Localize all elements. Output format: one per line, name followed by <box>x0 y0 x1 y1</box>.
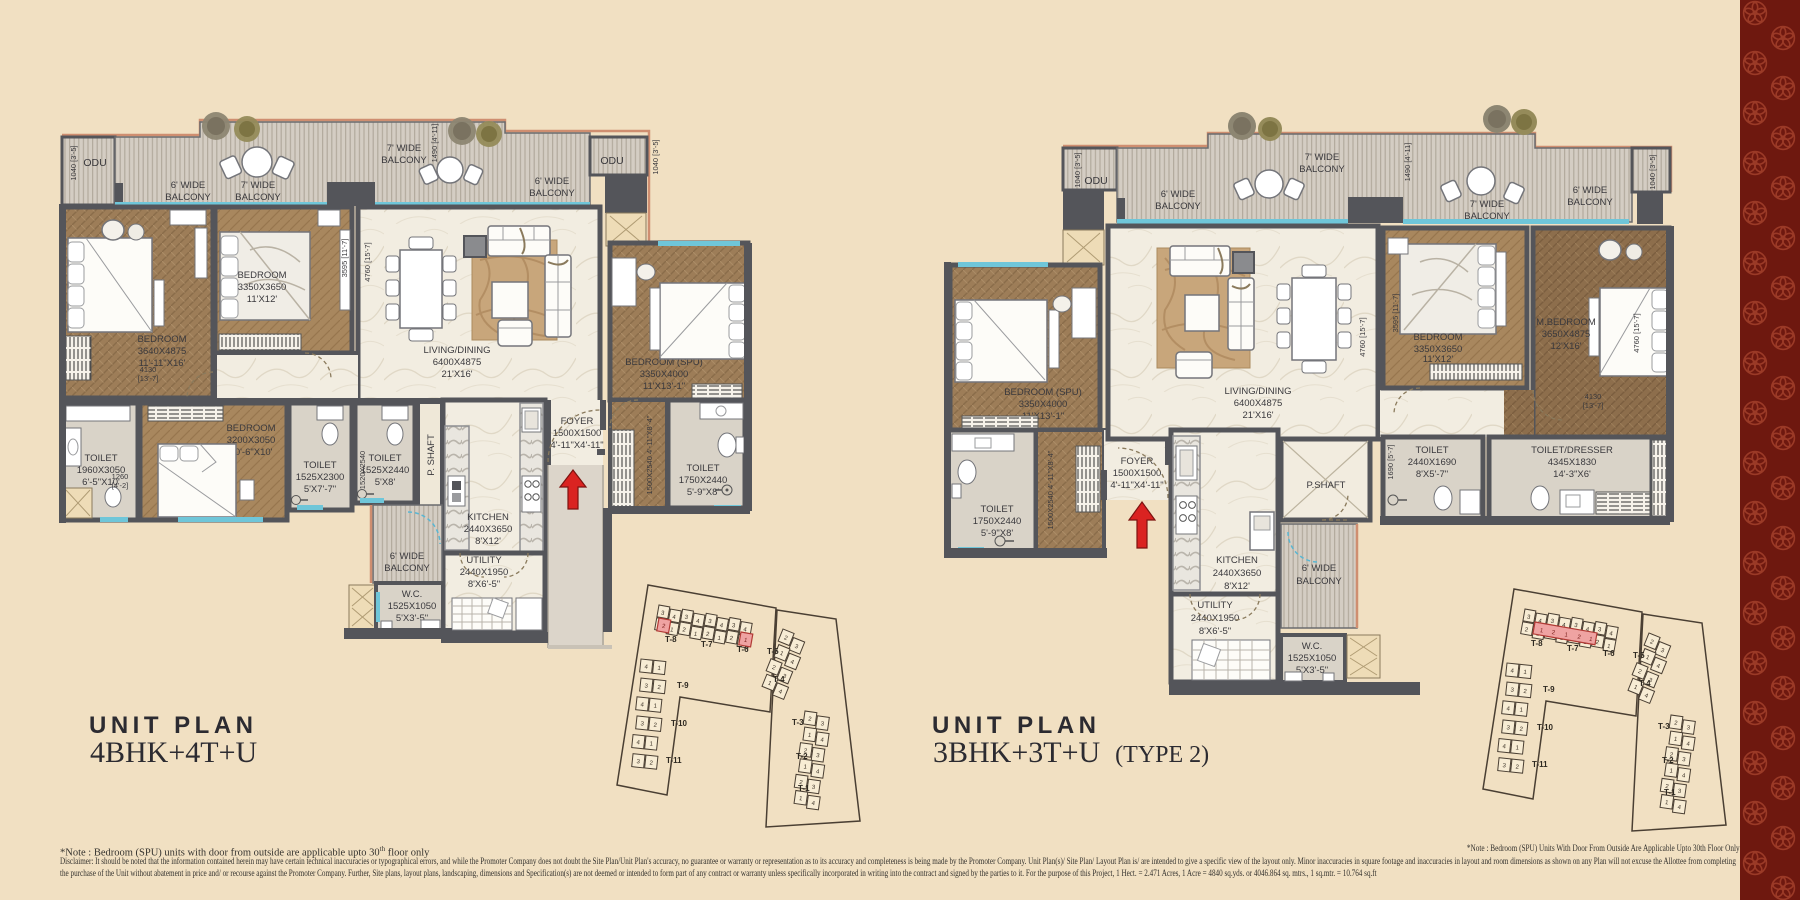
svg-text:6' WIDE: 6' WIDE <box>171 180 206 191</box>
svg-text:BALCONY: BALCONY <box>1155 201 1201 212</box>
svg-text:1500X2540 4'-11"X8'-4": 1500X2540 4'-11"X8'-4" <box>1046 450 1055 529</box>
svg-text:BALCONY: BALCONY <box>529 188 575 199</box>
svg-text:8'X6'-5": 8'X6'-5" <box>468 579 500 590</box>
svg-text:1040 [3'-5]: 1040 [3'-5] <box>1073 152 1082 187</box>
svg-text:BEDROOM (SPU): BEDROOM (SPU) <box>1004 387 1082 398</box>
svg-text:BEDROOM: BEDROOM <box>1413 332 1462 343</box>
svg-text:ODU: ODU <box>600 155 623 167</box>
svg-text:1525X2440: 1525X2440 <box>361 465 410 476</box>
svg-text:TOILET: TOILET <box>368 453 401 464</box>
svg-text:1260: 1260 <box>112 472 129 481</box>
svg-text:1040 [3'-5]: 1040 [3'-5] <box>1648 154 1657 189</box>
svg-text:6' WIDE: 6' WIDE <box>535 176 570 187</box>
svg-text:UTILITY: UTILITY <box>466 555 502 566</box>
svg-text:3350X3650: 3350X3650 <box>238 282 287 293</box>
svg-text:BALCONY: BALCONY <box>384 563 430 574</box>
svg-text:FOYER: FOYER <box>561 416 594 427</box>
svg-text:UTILITY: UTILITY <box>1197 600 1233 611</box>
svg-text:M.BEDROOM: M.BEDROOM <box>1536 317 1596 328</box>
svg-text:ODU: ODU <box>1084 175 1107 187</box>
svg-text:BEDROOM: BEDROOM <box>226 423 275 434</box>
svg-text:TOILET: TOILET <box>686 463 719 474</box>
svg-text:6400X4875: 6400X4875 <box>433 357 482 368</box>
svg-text:1525X2300: 1525X2300 <box>296 472 345 483</box>
svg-text:1750X2440: 1750X2440 <box>973 516 1022 527</box>
svg-text:3650X4875: 3650X4875 <box>1542 329 1591 340</box>
svg-text:21'X16': 21'X16' <box>441 369 472 380</box>
svg-text:W.C.: W.C. <box>1302 641 1323 652</box>
svg-text:14'-3"X6': 14'-3"X6' <box>1553 469 1591 480</box>
svg-text:BALCONY: BALCONY <box>1299 164 1345 175</box>
svg-text:ODU: ODU <box>83 157 106 169</box>
svg-text:BALCONY: BALCONY <box>165 192 211 203</box>
svg-text:5'X7'-7": 5'X7'-7" <box>304 484 336 495</box>
svg-text:4130: 4130 <box>1585 392 1602 401</box>
svg-text:KITCHEN: KITCHEN <box>1216 555 1258 566</box>
svg-text:2440X1950: 2440X1950 <box>1191 613 1240 624</box>
svg-text:1040 [3'-5]: 1040 [3'-5] <box>69 145 78 180</box>
svg-text:4'-11"X4'-11": 4'-11"X4'-11" <box>1110 480 1163 491</box>
svg-text:3595 [11'-7]: 3595 [11'-7] <box>1391 294 1400 333</box>
svg-text:BALCONY: BALCONY <box>1296 576 1342 587</box>
svg-text:12'X16': 12'X16' <box>1550 341 1581 352</box>
svg-text:4130: 4130 <box>140 365 157 374</box>
svg-text:KITCHEN: KITCHEN <box>467 512 509 523</box>
svg-text:4760 [15'-7]: 4760 [15'-7] <box>363 242 372 281</box>
svg-text:BEDROOM: BEDROOM <box>237 270 286 281</box>
svg-text:5'-9"X8': 5'-9"X8' <box>687 487 720 498</box>
svg-text:11'X12': 11'X12' <box>1423 354 1454 365</box>
svg-text:TOILET: TOILET <box>980 504 1013 515</box>
svg-text:1690 [5'-7]: 1690 [5'-7] <box>1386 444 1395 479</box>
svg-text:[4'-2]: [4'-2] <box>112 481 128 490</box>
svg-text:8'X6'-5": 8'X6'-5" <box>1199 626 1231 637</box>
svg-text:3595 [11'-7]: 3595 [11'-7] <box>340 239 349 278</box>
svg-text:8'X12': 8'X12' <box>1224 581 1250 592</box>
svg-text:4760 [15'-7]: 4760 [15'-7] <box>1632 313 1641 352</box>
svg-text:21'X16': 21'X16' <box>1242 410 1273 421</box>
svg-text:8'X12': 8'X12' <box>475 536 501 547</box>
svg-text:1500X1500: 1500X1500 <box>1113 468 1162 479</box>
svg-text:4760 [15'-7]: 4760 [15'-7] <box>1358 317 1367 356</box>
svg-text:1040 [3'-5]: 1040 [3'-5] <box>651 139 660 174</box>
svg-text:FOYER: FOYER <box>1121 456 1154 467</box>
svg-text:1490 [4'-11]: 1490 [4'-11] <box>1403 143 1412 182</box>
svg-text:1520X2540: 1520X2540 <box>358 451 367 489</box>
svg-text:4'-11"X4'-11": 4'-11"X4'-11" <box>550 440 603 451</box>
svg-text:3350X4000: 3350X4000 <box>1019 399 1068 410</box>
svg-text:TOILET: TOILET <box>1415 445 1448 456</box>
svg-text:1750X2440: 1750X2440 <box>679 475 728 486</box>
svg-text:2440X1690: 2440X1690 <box>1408 457 1457 468</box>
svg-text:11'X12': 11'X12' <box>247 294 278 305</box>
svg-text:BALCONY: BALCONY <box>1567 197 1613 208</box>
svg-text:7' WIDE: 7' WIDE <box>241 180 276 191</box>
svg-text:8'X5'-7": 8'X5'-7" <box>1416 469 1448 480</box>
svg-text:P.SHAFT: P.SHAFT <box>1307 480 1346 491</box>
svg-text:6400X4875: 6400X4875 <box>1234 398 1283 409</box>
svg-text:1525X1050: 1525X1050 <box>388 601 437 612</box>
svg-text:7' WIDE: 7' WIDE <box>387 143 422 154</box>
svg-text:W.C.: W.C. <box>402 589 423 600</box>
svg-text:P. SHAFT: P. SHAFT <box>426 434 437 476</box>
svg-text:BALCONY: BALCONY <box>235 192 281 203</box>
svg-text:5'X8': 5'X8' <box>375 477 396 488</box>
svg-text:11'X13'-1": 11'X13'-1" <box>643 381 685 392</box>
svg-text:6' WIDE: 6' WIDE <box>1302 563 1337 574</box>
svg-text:7' WIDE: 7' WIDE <box>1305 152 1340 163</box>
svg-text:6' WIDE: 6' WIDE <box>1161 189 1196 200</box>
svg-text:7' WIDE: 7' WIDE <box>1470 199 1505 210</box>
svg-text:6' WIDE: 6' WIDE <box>390 551 425 562</box>
svg-text:2440X3650: 2440X3650 <box>1213 568 1262 579</box>
svg-text:1490 [4'-11]: 1490 [4'-11] <box>430 124 439 163</box>
svg-text:BEDROOM: BEDROOM <box>137 334 186 345</box>
svg-text:TOILET/DRESSER: TOILET/DRESSER <box>1531 445 1613 456</box>
svg-text:1525X1050: 1525X1050 <box>1288 653 1337 664</box>
svg-text:[13'-7]: [13'-7] <box>138 374 159 383</box>
svg-text:2440X3650: 2440X3650 <box>464 524 513 535</box>
svg-text:6' WIDE: 6' WIDE <box>1573 185 1608 196</box>
svg-text:LIVING/DINING: LIVING/DINING <box>1224 386 1291 397</box>
svg-text:[13'-7]: [13'-7] <box>1583 401 1604 410</box>
svg-text:3350X4000: 3350X4000 <box>640 369 689 380</box>
svg-text:BALCONY: BALCONY <box>381 155 427 166</box>
svg-text:3640X4875: 3640X4875 <box>138 346 187 357</box>
svg-text:TOILET: TOILET <box>303 460 336 471</box>
svg-text:1500X2540 4'-11"X8'-4": 1500X2540 4'-11"X8'-4" <box>645 415 654 494</box>
svg-text:TOILET: TOILET <box>84 453 117 464</box>
svg-text:4345X1830: 4345X1830 <box>1548 457 1597 468</box>
svg-text:LIVING/DINING: LIVING/DINING <box>423 345 490 356</box>
